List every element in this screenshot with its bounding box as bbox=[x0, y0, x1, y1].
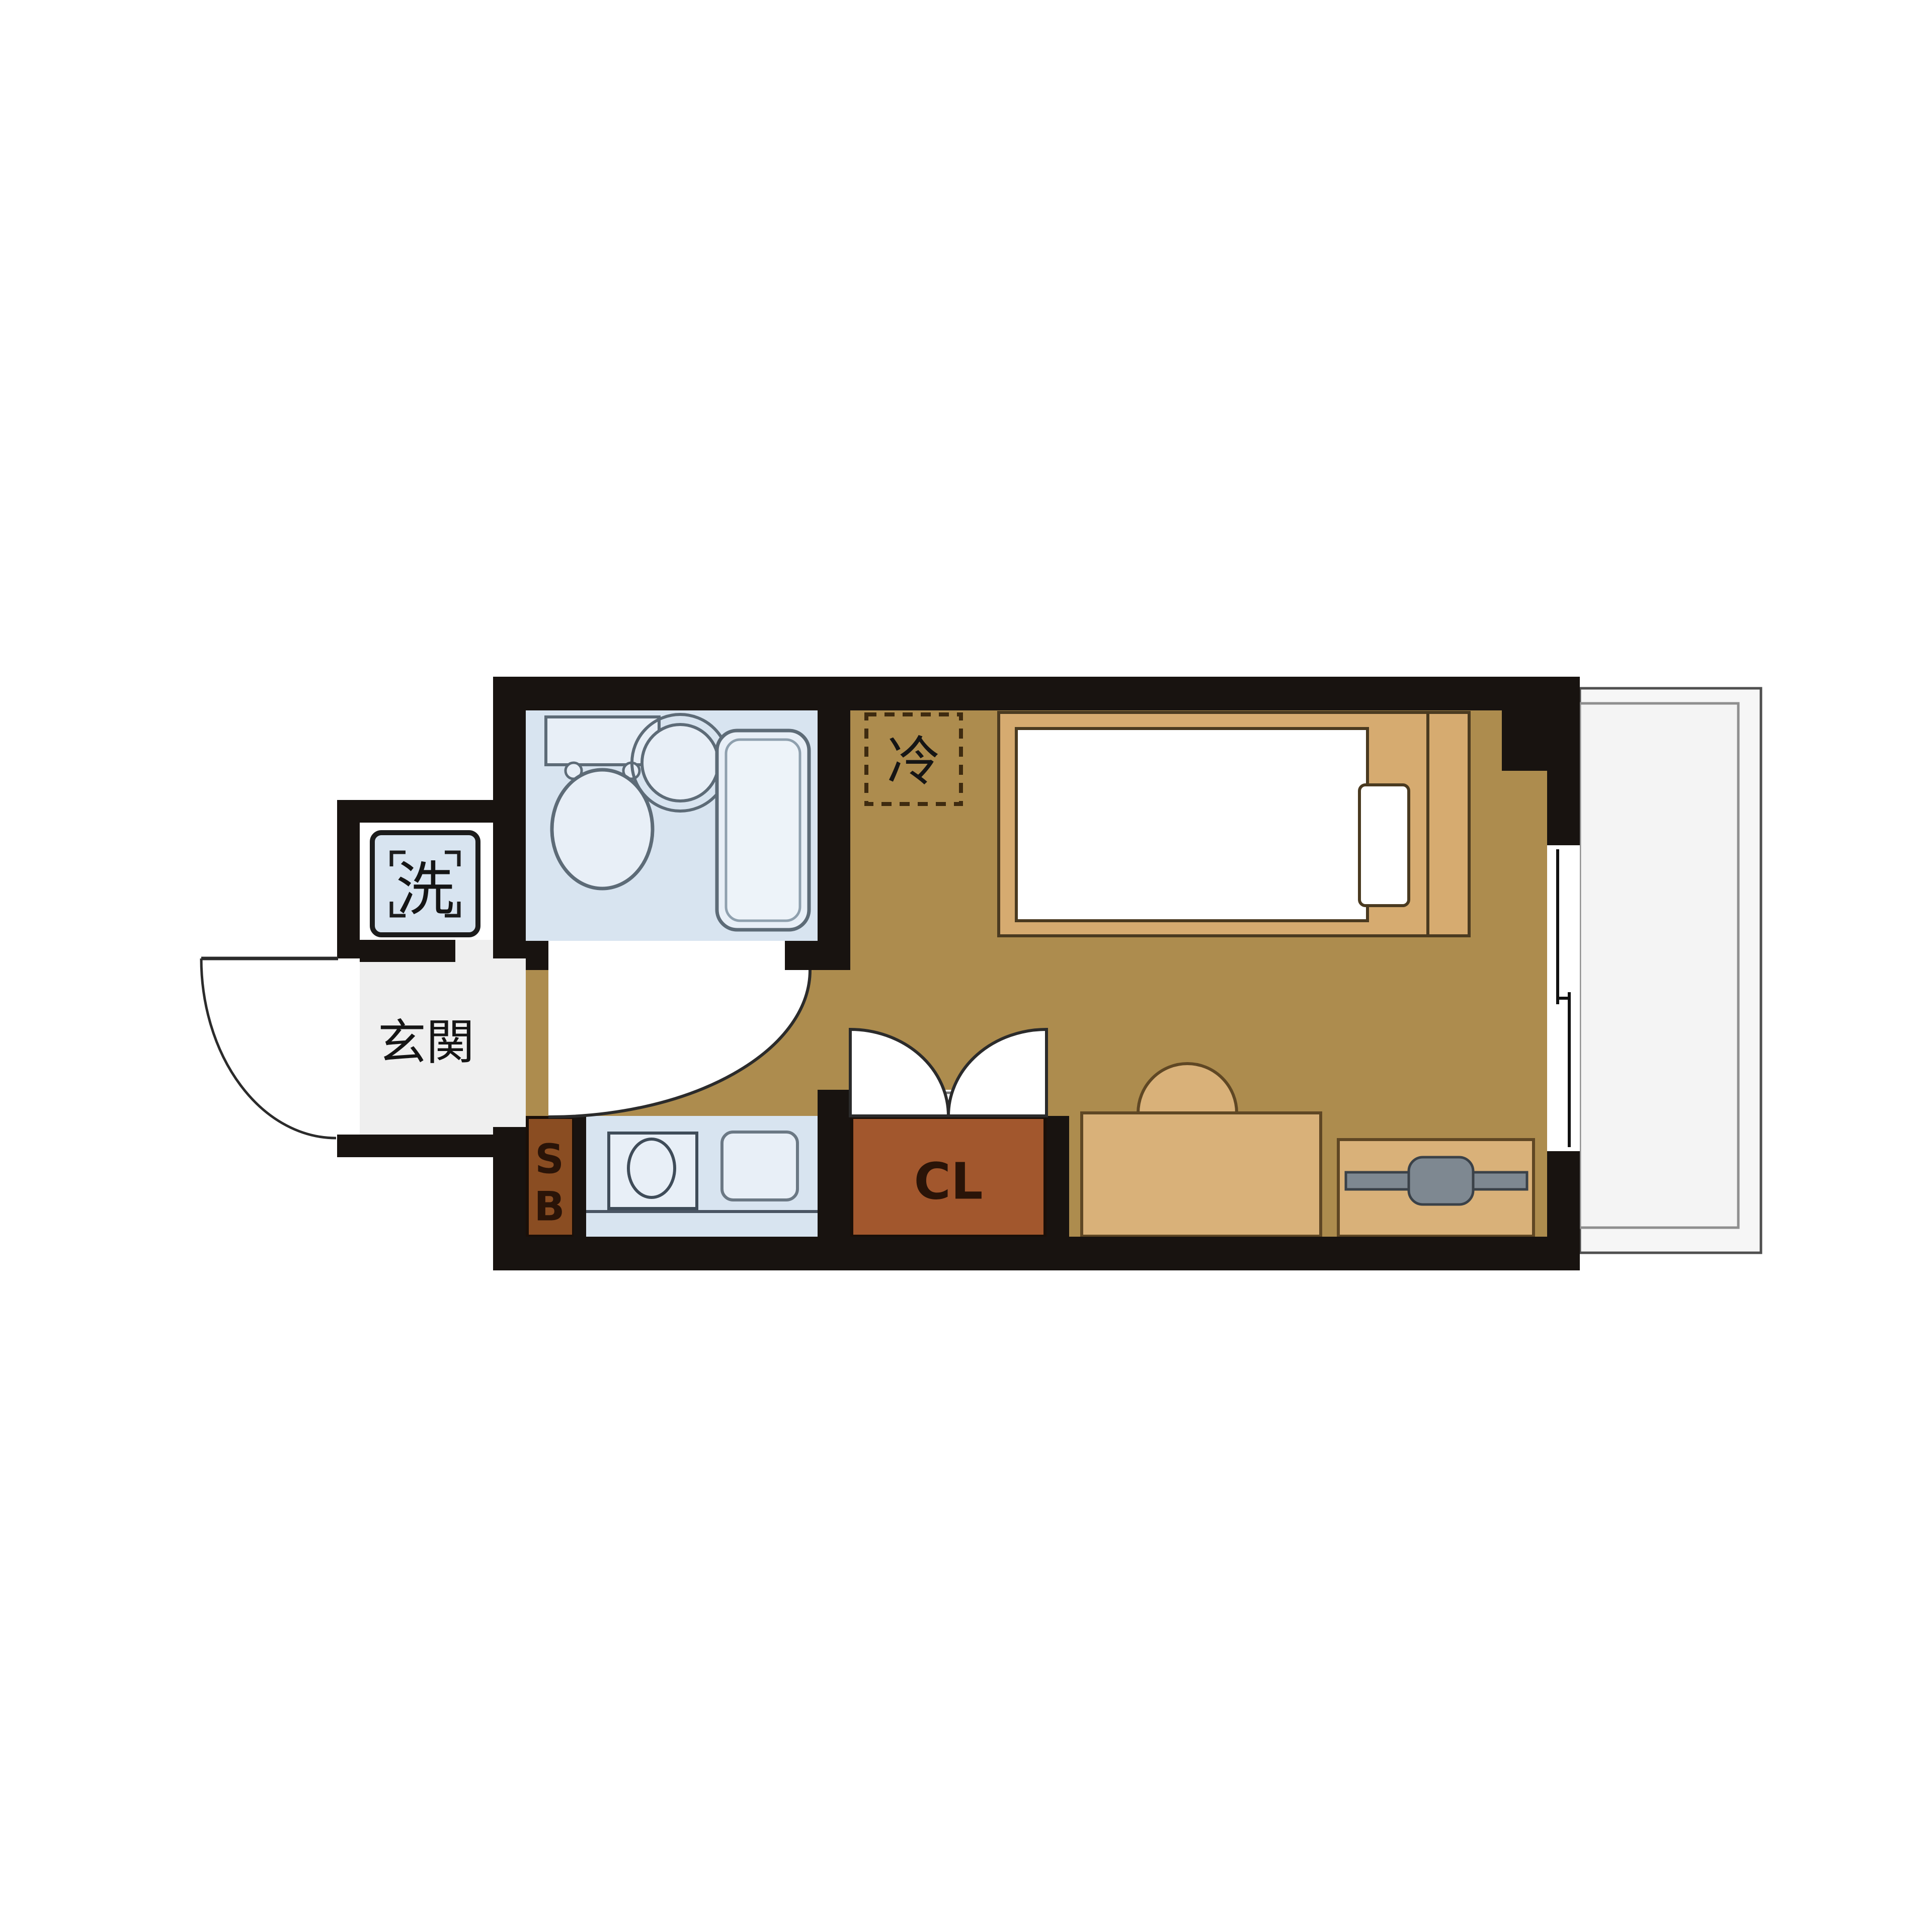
balcony-floor bbox=[1580, 703, 1738, 1228]
bathroom-sink-fixture bbox=[632, 714, 729, 811]
wall-kitchen-closet bbox=[818, 1090, 850, 1238]
wall-closet-right bbox=[1046, 1116, 1069, 1238]
refrigerator-label: 冷 bbox=[887, 731, 940, 793]
bed-mattress bbox=[1016, 729, 1367, 921]
balcony bbox=[1580, 688, 1761, 1253]
entrance-doorway-strip bbox=[493, 958, 526, 1127]
wall-bath-door-stub-right bbox=[785, 941, 850, 970]
bed-pillow bbox=[1359, 785, 1409, 906]
bathtub-fixture bbox=[717, 731, 809, 930]
bathtub-inner bbox=[726, 740, 800, 921]
wall-bathroom-divider bbox=[818, 710, 850, 970]
washing-machine-label: 洗 bbox=[396, 856, 454, 924]
wall-top bbox=[493, 677, 1580, 710]
tv bbox=[1409, 1157, 1473, 1204]
wall-entrance-left-upper bbox=[337, 800, 360, 958]
wall-kitchen-left bbox=[574, 1116, 586, 1238]
bed bbox=[999, 712, 1469, 936]
desk bbox=[1082, 1113, 1321, 1236]
wall-entrance-top bbox=[337, 800, 526, 823]
floor-plan-drawing: 洗 玄関 冷 S B CL bbox=[0, 0, 1932, 1932]
kitchen-sink bbox=[722, 1132, 797, 1200]
window-icon bbox=[1547, 845, 1580, 1151]
closet-label: CL bbox=[914, 1152, 983, 1211]
wall-bottom bbox=[493, 1237, 1580, 1270]
bathroom-door-threshold bbox=[548, 941, 785, 970]
toilet-fixture bbox=[546, 717, 659, 889]
shoe-box-label-b: B bbox=[534, 1183, 565, 1230]
wall-bath-door-stub-left bbox=[526, 941, 548, 970]
entrance-door-arc-icon bbox=[201, 958, 336, 1138]
wall-washer-divider bbox=[360, 940, 455, 962]
wall-notch-top-right bbox=[1502, 710, 1580, 771]
wall-right-lower bbox=[1547, 1151, 1580, 1270]
tv-board bbox=[1338, 1140, 1534, 1236]
floor-plan-page: 洗 玄関 冷 S B CL bbox=[0, 0, 1932, 1932]
shoe-box-label-s: S bbox=[535, 1136, 564, 1183]
sink-basin bbox=[642, 725, 718, 801]
entrance-label: 玄関 bbox=[378, 1014, 474, 1071]
wall-entrance-bottom bbox=[337, 1135, 526, 1157]
